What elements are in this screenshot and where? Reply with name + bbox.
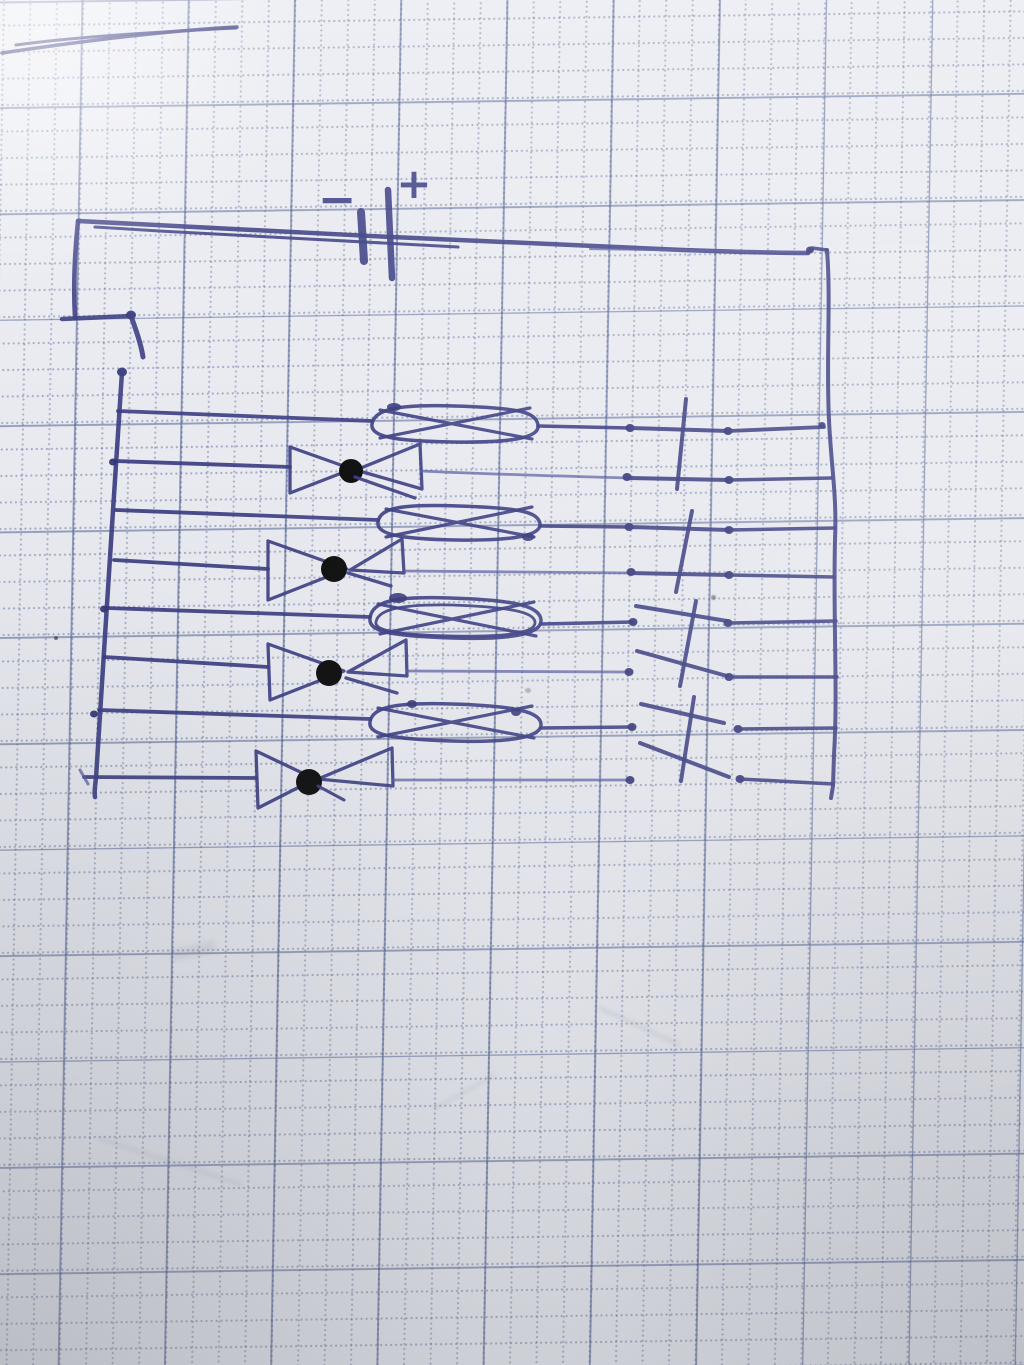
branch-4-valve (114, 539, 834, 600)
valve-handle-stroke (355, 477, 415, 498)
switch-wire-closed (629, 527, 729, 530)
valve-handle-stroke (346, 678, 397, 693)
hand-drawn-circuit-sketch: + − (0, 0, 1024, 1365)
branch-3-lamp (116, 506, 835, 541)
junction-dot (626, 776, 635, 784)
junction-dot (90, 711, 98, 718)
valve-hub-circle (296, 769, 322, 795)
battery-plus-label: + (396, 159, 431, 208)
slash-mark (676, 511, 692, 592)
junction-dot (625, 668, 634, 676)
branch-6-valve (104, 640, 837, 700)
lamp-symbol (378, 506, 540, 541)
left-bus-wire (95, 372, 122, 797)
branch-5-lamp (100, 593, 836, 638)
main-knife-switch-open (62, 221, 143, 377)
junction-dot (100, 606, 108, 613)
branch-2-valve (109, 444, 831, 498)
valve-handle-stroke (318, 786, 344, 800)
slash-mark (681, 697, 694, 781)
junction-dot (628, 723, 637, 731)
junction-dot (109, 459, 117, 466)
valve-symbol (256, 748, 393, 808)
switch-wire-closed (630, 428, 728, 431)
stray-scribble (2, 27, 237, 53)
lamp-symbol (370, 593, 541, 638)
slash-mark (677, 399, 686, 489)
valve-symbol (268, 539, 404, 600)
valve-symbol (268, 640, 407, 700)
valve-handle-stroke (348, 573, 391, 586)
battery-symbol: + − (318, 159, 432, 278)
photo-of-notebook-page: + − (0, 0, 1024, 1365)
switch-lever-open (636, 606, 727, 621)
lamp-symbol (372, 403, 538, 442)
junction-dot (819, 422, 826, 428)
valve-hub-circle (316, 660, 342, 686)
battery-long-plate-icon (388, 190, 392, 278)
switch-lever-open (641, 704, 724, 723)
top-bus-wire (78, 221, 827, 254)
switch-blade (131, 316, 143, 357)
valve-hub-circle (321, 556, 347, 582)
junction-dot (806, 247, 814, 254)
junction-dot (629, 618, 638, 626)
branch-8-valve (80, 743, 833, 808)
branch-7-lamp (90, 700, 836, 741)
right-bus-wire (827, 250, 836, 798)
valve-symbol (290, 444, 422, 498)
switch-slash-marks (676, 399, 696, 781)
branch-1-lamp (118, 403, 826, 442)
battery-minus-label: − (318, 172, 357, 226)
lamp-symbol (370, 700, 541, 741)
